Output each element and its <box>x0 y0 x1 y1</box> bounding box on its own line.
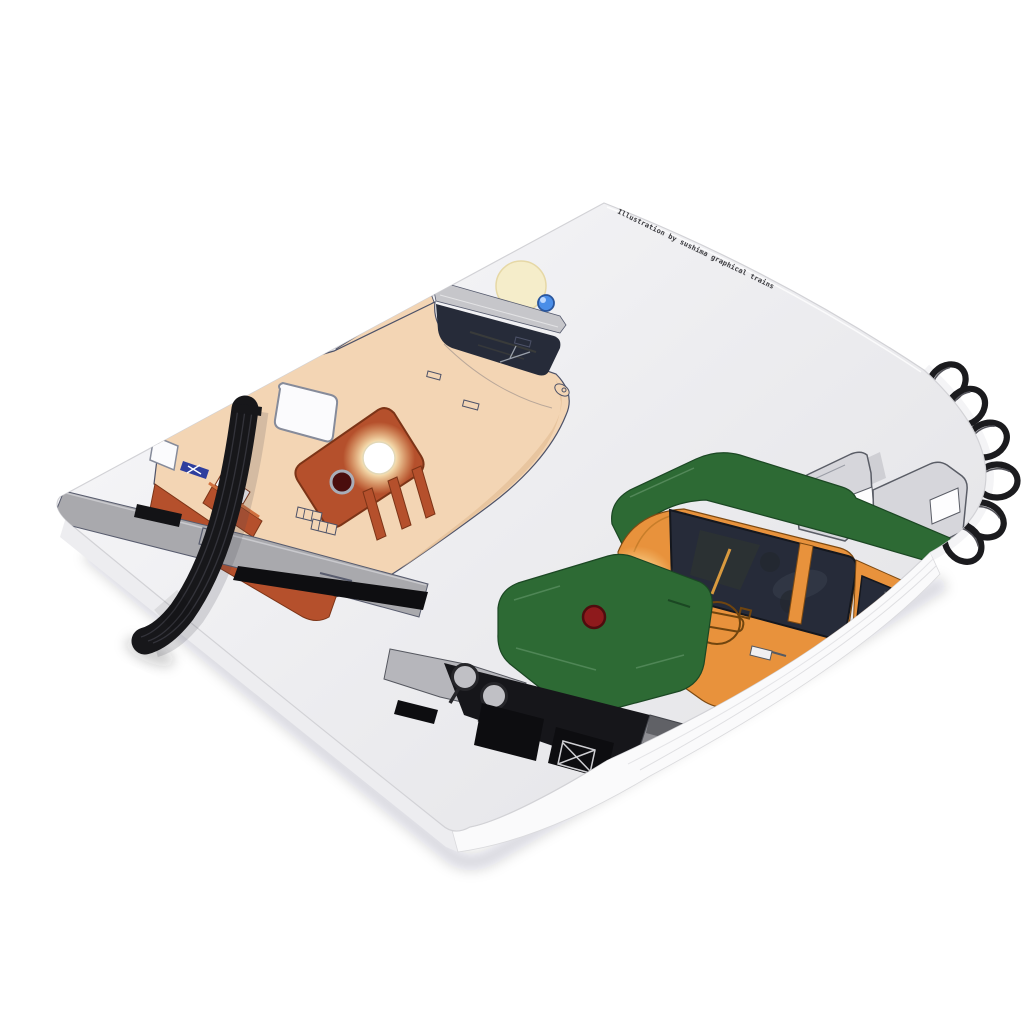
band-edge-crossing-shade <box>163 600 186 620</box>
marker-light-highlight <box>540 297 546 303</box>
marker-light-icon <box>538 295 554 311</box>
coupler-head <box>610 799 642 821</box>
side-green-skirtline <box>848 656 940 706</box>
air-hose-icon <box>453 665 478 690</box>
side-door-window <box>922 610 942 640</box>
taillight-icon <box>583 606 605 628</box>
notebook-mockup-scene: Illustration by sushima graphical trains <box>0 0 1024 1024</box>
product-photo-notebook: Illustration by sushima graphical trains <box>0 0 1024 1024</box>
taillight-icon <box>331 471 353 493</box>
headlight-icon <box>363 442 395 474</box>
side-door <box>916 602 948 668</box>
windshield-smudge <box>760 552 780 572</box>
